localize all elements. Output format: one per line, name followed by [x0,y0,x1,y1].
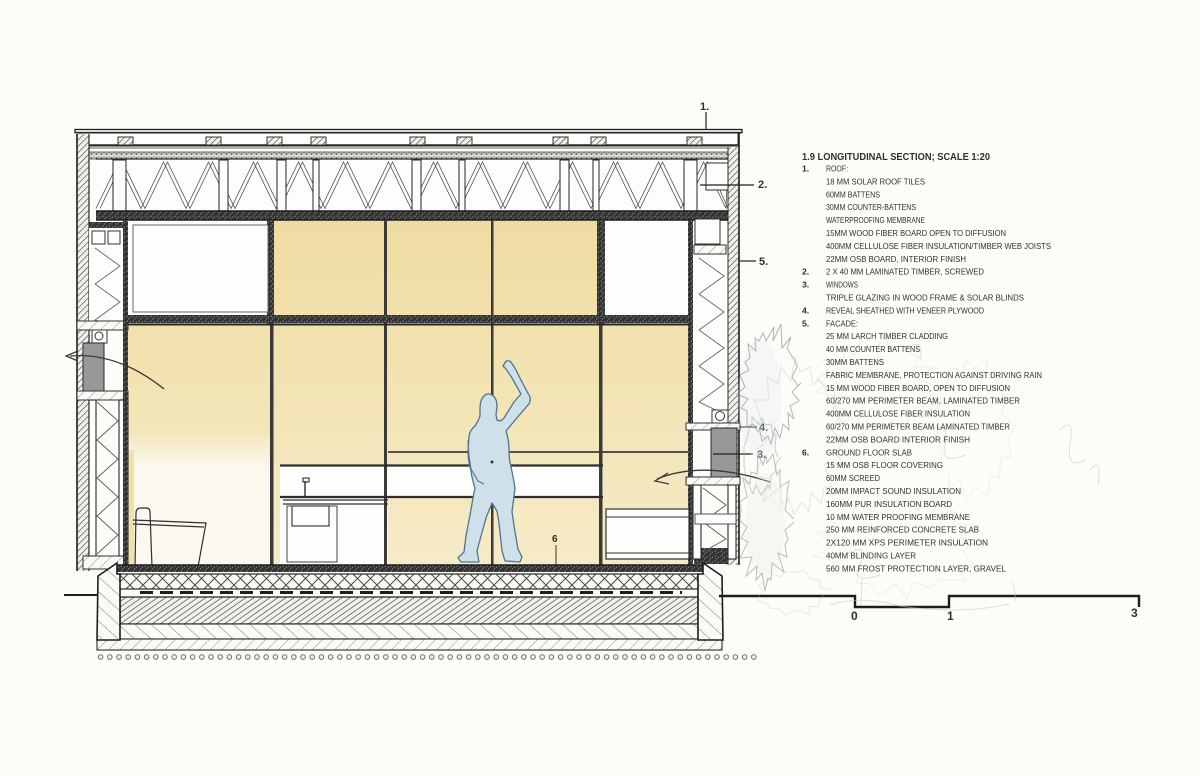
svg-text:REVEAL SHEATHED WITH VENEER PL: REVEAL SHEATHED WITH VENEER PLYWOOD [826,305,984,315]
svg-text:WATERPROOFING MEMBRANE: WATERPROOFING MEMBRANE [826,215,925,225]
svg-text:FABRIC MEMBRANE, PROTECTION AG: FABRIC MEMBRANE, PROTECTION AGAINST DRIV… [826,370,1042,380]
svg-text:18 MM SOLAR ROOF TILES: 18 MM SOLAR ROOF TILES [826,176,925,186]
svg-text:15 MM OSB FLOOR COVERING: 15 MM OSB FLOOR COVERING [826,460,943,470]
svg-text:40MM BLINDING LAYER: 40MM BLINDING LAYER [826,551,916,561]
svg-text:5.: 5. [802,318,809,328]
svg-text:60MM BATTENS: 60MM BATTENS [826,189,880,199]
svg-text:TRIPLE GLAZING IN WOOD FRAME: TRIPLE GLAZING IN WOOD FRAME & SOLAR BLI… [826,293,1024,303]
svg-text:40 MM COUNTER BATTENS: 40 MM COUNTER BATTENS [826,344,920,354]
svg-text:30MM COUNTER-BATTENS: 30MM COUNTER-BATTENS [826,202,916,212]
svg-text:5.: 5. [759,256,768,268]
svg-text:400MM CELLULOSE FIBER INSULATI: 400MM CELLULOSE FIBER INSULATION/TIMBER … [826,241,1051,251]
svg-text:2 X 40 MM LAMINATED TIMBER, SC: 2 X 40 MM LAMINATED TIMBER, SCREWED [826,267,984,277]
svg-text:30MM BATTENS: 30MM BATTENS [826,357,884,367]
svg-text:WINDOWS: WINDOWS [826,280,858,290]
svg-text:15 MM WOOD FIBER BOARD, OPEN T: 15 MM WOOD FIBER BOARD, OPEN TO DIFFUSIO… [826,383,1010,393]
svg-text:2.: 2. [802,267,809,277]
svg-text:25 MM LARCH TIMBER CLADDING: 25 MM LARCH TIMBER CLADDING [826,331,948,341]
svg-text:1.: 1. [700,101,709,113]
svg-text:60MM SCREED: 60MM SCREED [826,473,880,483]
svg-text:400MM CELLULOSE FIBER INSULATI: 400MM CELLULOSE FIBER INSULATION [826,409,970,419]
svg-text:250 MM REINFORCED CONCRETE: 250 MM REINFORCED CONCRETE SLAB [826,525,979,535]
svg-text:22MM OSB BOARD, INTERIOR FINIS: 22MM OSB BOARD, INTERIOR FINISH [826,254,966,264]
svg-text:2.: 2. [758,179,767,191]
svg-text:1.: 1. [802,164,809,174]
svg-text:0: 0 [851,609,858,623]
svg-text:15MM WOOD FIBER BOARD OPEN TO: 15MM WOOD FIBER BOARD OPEN TO DIFFUSION [826,228,1006,238]
svg-text:22MM OSB BOARD INTERIOR FINI: 22MM OSB BOARD INTERIOR FINISH [826,434,970,444]
svg-text:6.: 6. [802,447,809,457]
svg-text:60/270 MM PERIMETER BEAM, LAMI: 60/270 MM PERIMETER BEAM, LAMINATED TIMB… [826,396,1020,406]
svg-text:60/270 MM PERIMETER BEAM LAMIN: 60/270 MM PERIMETER BEAM LAMINATED TIMBE… [826,422,1010,432]
svg-text:1: 1 [947,609,954,623]
svg-text:ROOF:: ROOF: [826,164,848,174]
svg-text:560 MM FROST PROTECTION LAYE: 560 MM FROST PROTECTION LAYER, GRAVEL [826,563,1006,573]
svg-text:3.: 3. [802,280,809,290]
svg-text:2X120 MM XPS PERIMETER INSU: 2X120 MM XPS PERIMETER INSULATION [826,538,988,548]
svg-text:FACADE:: FACADE: [826,318,858,328]
svg-text:4.: 4. [802,305,809,315]
svg-text:160MM PUR INSULATION BOARD: 160MM PUR INSULATION BOARD [826,499,952,509]
svg-text:GROUND FLOOR SLAB: GROUND FLOOR SLAB [826,447,912,457]
svg-text:3: 3 [1131,606,1138,620]
svg-text:10 MM WATER PROOFING MEMBRA: 10 MM WATER PROOFING MEMBRANE [826,512,970,522]
svg-text:1.9 LONGITUDINAL SECTION; SCAL: 1.9 LONGITUDINAL SECTION; SCALE 1:20 [802,151,990,163]
svg-text:6: 6 [552,534,558,545]
svg-text:20MM IMPACT SOUND INSULATION: 20MM IMPACT SOUND INSULATION [826,486,961,496]
